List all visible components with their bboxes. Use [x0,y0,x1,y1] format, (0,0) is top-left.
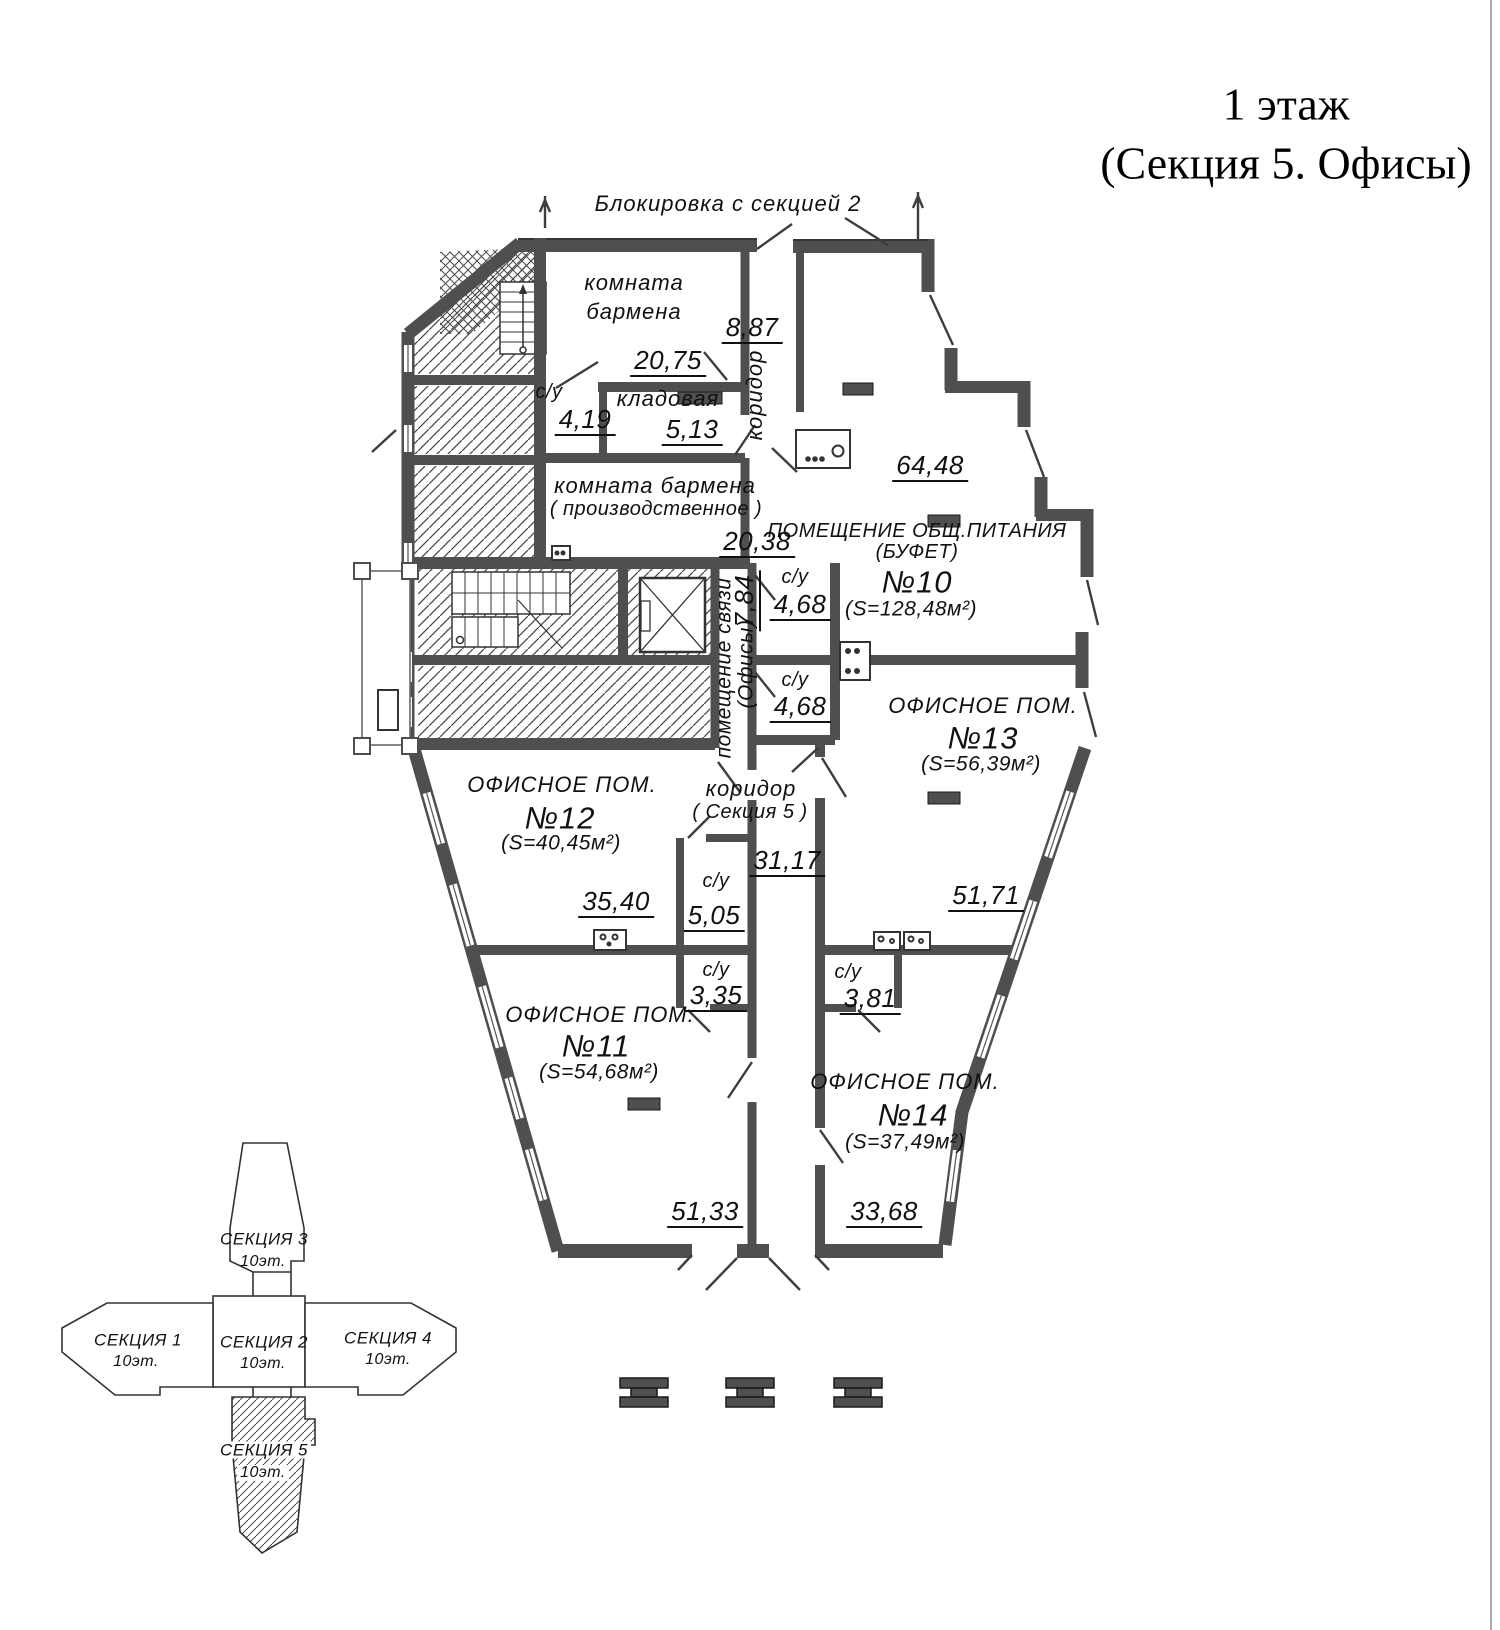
su335-dim: 3,35 [686,982,747,1012]
su468a-label: с/у [781,567,808,587]
office14-number: №14 [877,1100,948,1131]
office11-area: (S=54,68м²) [539,1062,659,1083]
staircase-central [452,572,570,648]
su505-label: с/у [702,871,729,891]
key-section2-floors: 10эт. [240,1356,286,1372]
office14-dim: 33,68 [846,1198,922,1228]
office14-area: (S=37,49м²) [845,1132,965,1153]
svyaz-label2: (Офисы) [736,620,757,709]
kladovaya-label: кладовая [617,388,719,410]
corridor5-label1: коридор [706,778,797,800]
svyaz-dim: 7,84 [731,571,761,632]
entrance-porch [354,563,418,754]
office14-label: ОФИСНОЕ ПОМ. [810,1071,1000,1093]
office12-number: №12 [524,803,595,834]
key-section4-floors: 10эт. [365,1352,411,1368]
key-section3-name: СЕКЦИЯ 3 [220,1231,308,1248]
office13-area: (S=56,39м²) [921,754,1041,775]
key-section5-floors: 10эт. [237,1465,289,1481]
su468a-dim: 4,68 [770,591,831,621]
su505-dim: 5,05 [684,902,745,932]
corridor5-dim: 31,17 [749,847,825,877]
office13-dim: 51,71 [948,882,1024,912]
key-section4-name: СЕКЦИЯ 4 [344,1330,432,1347]
buffet-label1: ПОМЕЩЕНИЕ ОБЩ.ПИТАНИЯ [768,521,1067,541]
bartender-prod-label2: ( производственное ) [550,499,762,519]
su381-label: с/у [834,962,861,982]
corridor5-label2: ( Секция 5 ) [692,802,807,822]
office12-area: (S=40,45м²) [501,833,621,854]
key-plan-section4-shape [305,1303,456,1395]
corridor-top-label: коридор [744,350,766,441]
buffet-label2: (БУФЕТ) [876,542,959,562]
su468b-label: с/у [781,670,808,690]
elevator-shaft [640,578,705,652]
drawing-title-line1: 1 этаж [1222,78,1349,131]
office11-dim: 51,33 [667,1198,743,1228]
room-bartender-dim: 20,75 [630,347,706,377]
floor-plan-page: 1 этаж (Секция 5. Офисы) Блокировка с се… [0,0,1500,1630]
office13-number: №13 [947,723,1018,754]
key-section1-floors: 10эт. [113,1354,159,1370]
blocking-note: Блокировка с секцией 2 [595,193,862,215]
office11-number: №11 [562,1031,631,1062]
office11-label: ОФИСНОЕ ПОМ. [505,1004,695,1026]
su419-label: с/у [535,382,562,402]
key-section3-floors: 10эт. [240,1254,286,1270]
su381-dim: 3,81 [840,985,901,1015]
buffet-dim: 64,48 [892,452,968,482]
bartender-prod-label1: комната бармена [554,475,756,497]
key-section2-name: СЕКЦИЯ 2 [220,1334,308,1351]
room-bartender-label1: комната [584,272,683,294]
buffet-area: (S=128,48м²) [845,599,977,620]
drawing-title-line2: (Секция 5. Офисы) [1100,137,1472,190]
su468b-dim: 4,68 [770,693,831,723]
su419-dim: 4,19 [555,406,616,436]
office12-label: ОФИСНОЕ ПОМ. [467,774,657,796]
room-bartender-label2: бармена [586,301,681,323]
su335-label: с/у [702,960,729,980]
key-section1-name: СЕКЦИЯ 1 [94,1332,182,1349]
corridor-top-dim: 8,87 [722,314,783,344]
key-section5-name: СЕКЦИЯ 5 [217,1442,311,1459]
office12-dim: 35,40 [578,888,654,918]
office13-label: ОФИСНОЕ ПОМ. [888,695,1078,717]
buffet-number: №10 [881,567,952,598]
kladovaya-dim: 5,13 [662,416,723,446]
ibeam-columns [620,1378,882,1407]
